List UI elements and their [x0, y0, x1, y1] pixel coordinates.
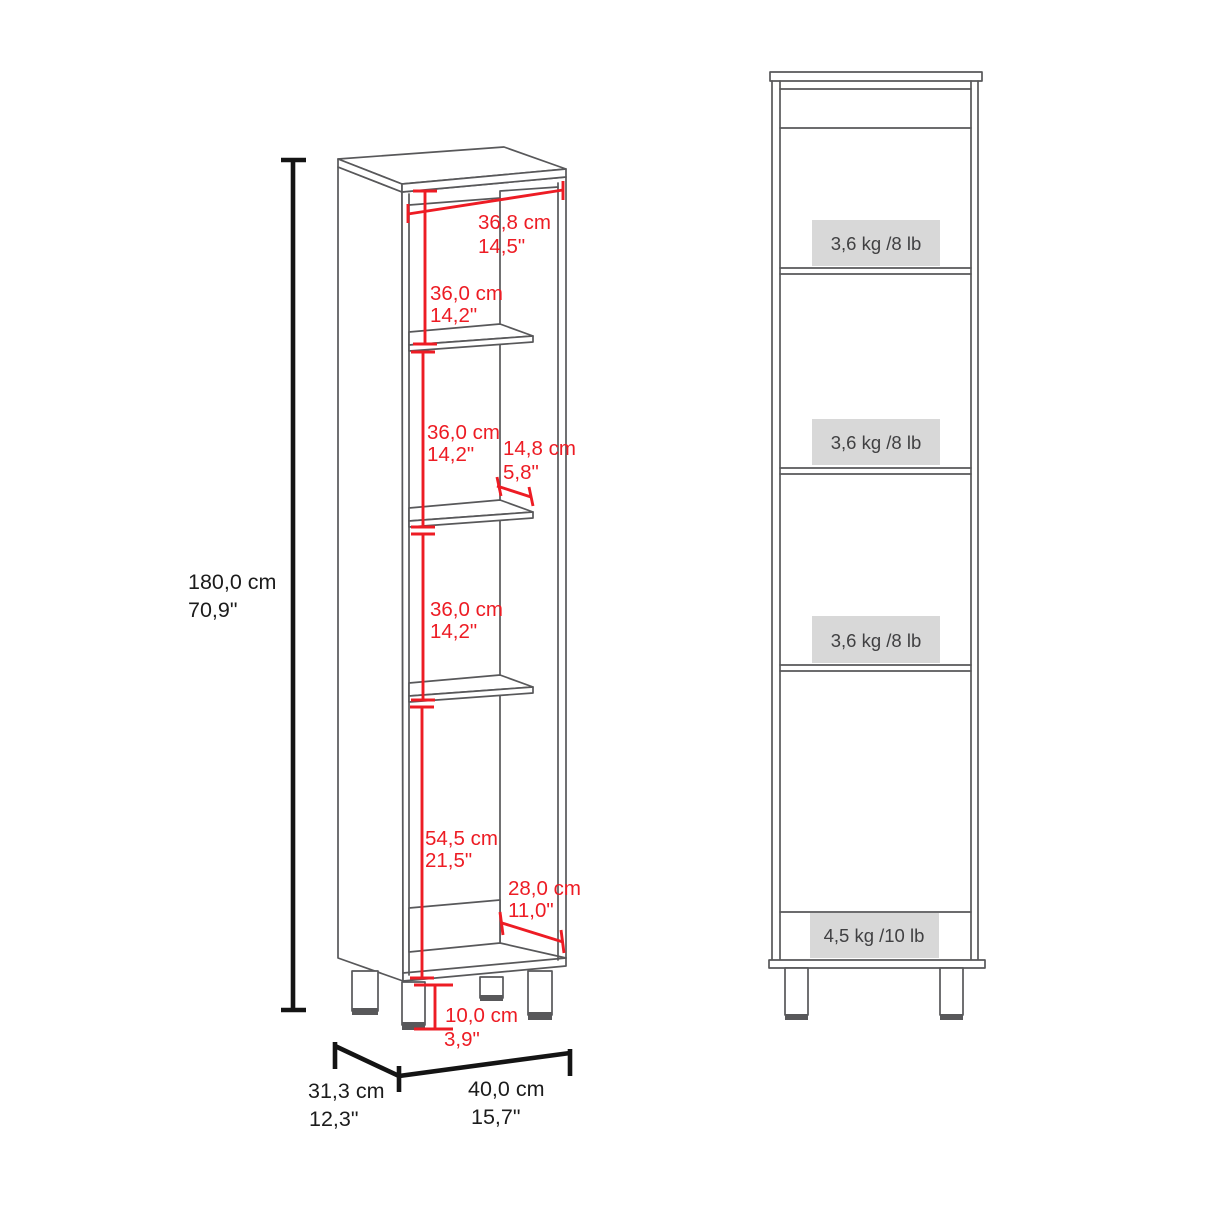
- label-leg-height-in: 3,9": [444, 1028, 480, 1051]
- front-top-board: [770, 72, 982, 81]
- label-middle-section-cm: 36,0 cm: [427, 421, 500, 444]
- label-middle-section-in: 14,2": [427, 443, 474, 466]
- front-leg-right: [940, 968, 963, 1020]
- label-shelf-depth-cm: 14,8 cm: [503, 437, 576, 460]
- label-bottom-section-in: 21,5": [425, 849, 472, 872]
- label-bottom-depth-in: 11,0": [508, 899, 554, 922]
- capacity-shelf-top-text: 3,6 kg /8 lb: [831, 233, 922, 254]
- label-lower-section-in: 14,2": [430, 620, 477, 643]
- leg-back-left: [352, 971, 378, 1015]
- capacity-shelf-middle: 3,6 kg /8 lb: [812, 419, 940, 465]
- capacity-shelf-lower: 3,6 kg /8 lb: [812, 616, 940, 663]
- label-total-height-cm: 180,0 cm: [188, 570, 276, 594]
- label-interior-width-cm: 36,8 cm: [478, 211, 551, 234]
- front-shelf-1: [780, 268, 971, 274]
- label-bottom-depth-cm: 28,0 cm: [508, 877, 581, 900]
- label-total-height-in: 70,9": [188, 598, 237, 622]
- perspective-view: 180,0 cm 70,9" 36,8 cm 14,5" 36,0 cm 14,…: [188, 147, 581, 1131]
- front-shelf-2: [780, 468, 971, 474]
- capacity-bottom: 4,5 kg /10 lb: [810, 913, 939, 958]
- label-depth-cm: 31,3 cm: [308, 1079, 384, 1103]
- cabinet-left-panel: [338, 167, 403, 981]
- front-leg-left: [785, 968, 808, 1020]
- capacity-bottom-text: 4,5 kg /10 lb: [824, 925, 925, 946]
- capacity-labels: 3,6 kg /8 lb 3,6 kg /8 lb 3,6 kg /8 lb 4…: [810, 220, 940, 958]
- label-depth-in: 12,3": [309, 1107, 358, 1131]
- label-top-section-in: 14,2": [430, 304, 477, 327]
- capacity-shelf-top: 3,6 kg /8 lb: [812, 220, 940, 266]
- front-shelf-3: [780, 665, 971, 671]
- capacity-shelf-lower-text: 3,6 kg /8 lb: [831, 630, 922, 651]
- label-lower-section-cm: 36,0 cm: [430, 598, 503, 621]
- leg-front-left: [402, 982, 425, 1030]
- label-leg-height-cm: 10,0 cm: [445, 1004, 518, 1027]
- label-width-cm: 40,0 cm: [468, 1077, 544, 1101]
- label-bottom-section-cm: 54,5 cm: [425, 827, 498, 850]
- leg-back-right: [480, 977, 503, 1001]
- front-view-carcass: [769, 72, 985, 1020]
- cabinet-dimension-diagram: 180,0 cm 70,9" 36,8 cm 14,5" 36,0 cm 14,…: [0, 0, 1214, 1214]
- front-view: 3,6 kg /8 lb 3,6 kg /8 lb 3,6 kg /8 lb 4…: [769, 72, 985, 1020]
- leg-front-right: [528, 971, 552, 1020]
- front-bottom-board: [769, 960, 985, 968]
- height-dimension-line: [281, 160, 306, 1010]
- label-interior-width-in: 14,5": [478, 235, 525, 258]
- label-width-in: 15,7": [471, 1105, 520, 1129]
- diagram-svg: 180,0 cm 70,9" 36,8 cm 14,5" 36,0 cm 14,…: [0, 0, 1214, 1214]
- capacity-shelf-middle-text: 3,6 kg /8 lb: [831, 432, 922, 453]
- label-shelf-depth-in: 5,8": [503, 461, 539, 484]
- label-top-section-cm: 36,0 cm: [430, 282, 503, 305]
